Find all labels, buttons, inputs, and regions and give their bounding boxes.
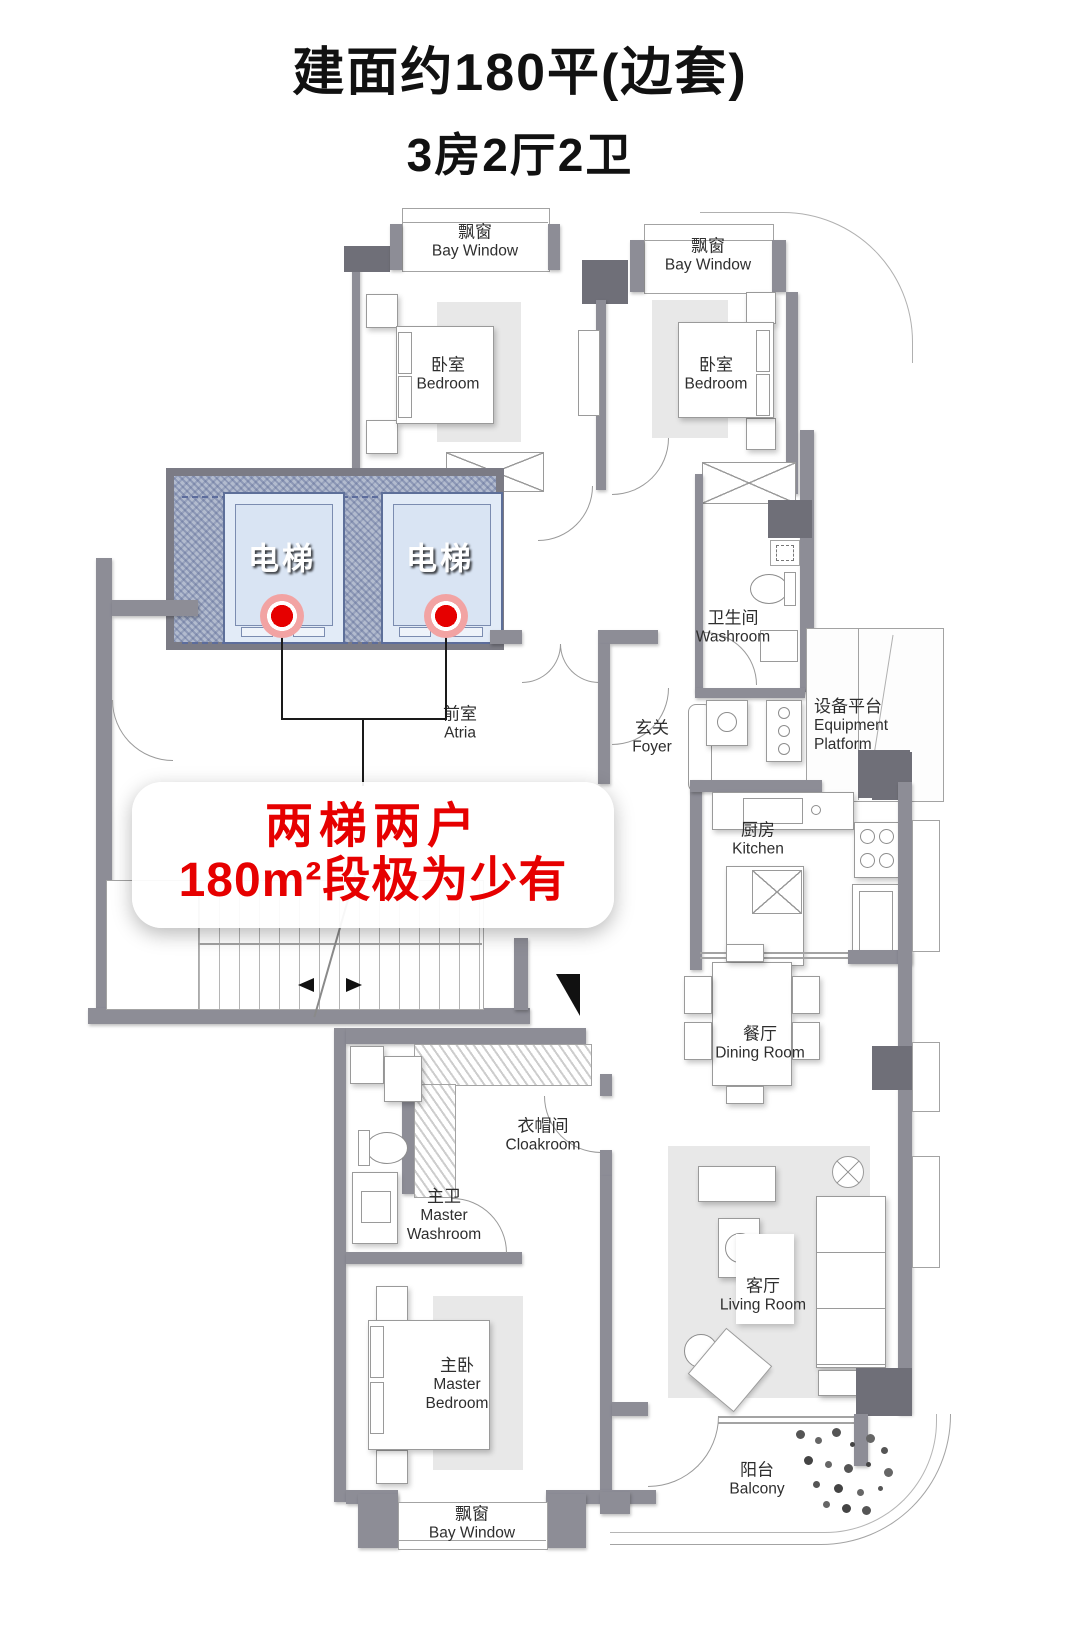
label-en: Master Washroom — [396, 1208, 492, 1245]
stair-arrow — [346, 978, 362, 992]
label-en: Equipment Platform — [814, 718, 910, 755]
exterior-window — [912, 820, 940, 952]
vent-shaft-inner — [776, 545, 794, 561]
wall — [112, 600, 198, 616]
wall — [695, 474, 703, 692]
room-label-cloakroom: 衣帽间 Cloakroom — [506, 1117, 581, 1156]
wall — [88, 1008, 530, 1024]
wall — [346, 1028, 586, 1044]
wall — [582, 260, 628, 304]
burner — [860, 829, 875, 844]
floorplan-page: 建面约180平(边套) 3房2厅2卫 — [0, 0, 1080, 1625]
section-marker — [556, 974, 580, 1016]
toilet — [366, 1132, 408, 1164]
entry-door-arc — [522, 644, 561, 683]
wall — [390, 224, 402, 270]
room-label-equipment-platform: 设备平台 Equipment Platform — [814, 697, 910, 755]
callout-line — [281, 718, 447, 720]
side-table — [832, 1156, 864, 1188]
label-en: Dining Room — [715, 1045, 805, 1064]
label-zh: 卫生间 — [696, 609, 770, 629]
nightstand — [376, 1286, 408, 1322]
label-en: Living Room — [720, 1297, 806, 1316]
wall — [600, 1074, 612, 1096]
callout-line — [281, 636, 283, 720]
exterior-window — [912, 1042, 940, 1112]
label-zh: 厨房 — [732, 821, 784, 841]
label-en: Foyer — [632, 739, 672, 758]
nightstand — [366, 294, 398, 328]
wall — [856, 1368, 912, 1416]
label-zh: 玄关 — [632, 719, 672, 739]
cabinet-inner — [859, 891, 893, 951]
wall — [695, 688, 805, 698]
pillow — [756, 330, 770, 372]
label-en: Balcony — [729, 1481, 784, 1500]
sink — [361, 1191, 391, 1223]
label-en: Master Bedroom — [409, 1377, 505, 1414]
burner — [879, 853, 894, 868]
wall — [598, 630, 658, 644]
sliding-door-line — [700, 957, 850, 959]
chair — [726, 1086, 764, 1104]
label-en: Washroom — [696, 629, 770, 648]
room-label-atria: 前室 Atria — [443, 705, 477, 744]
sink — [384, 1056, 422, 1102]
highlight-callout: 两梯两户 180m²段极为少有 — [132, 782, 614, 928]
exterior-window — [912, 1156, 940, 1268]
wall — [598, 644, 610, 784]
room-label-kitchen: 厨房 Kitchen — [732, 821, 784, 860]
toilet-tank — [784, 572, 796, 606]
label-zh: 主卧 — [409, 1356, 505, 1376]
door-arc — [112, 700, 173, 761]
vanity — [352, 1172, 398, 1244]
room-label-bay-window-bottom: 飘窗 Bay Window — [429, 1505, 515, 1544]
room-label-balcony: 阳台 Balcony — [729, 1461, 784, 1500]
label-zh: 衣帽间 — [506, 1117, 581, 1137]
cabinet — [852, 884, 900, 958]
nightstand — [376, 1450, 408, 1484]
chair — [726, 944, 764, 962]
label-zh: 前室 — [443, 705, 477, 725]
room-label-foyer: 玄关 Foyer — [632, 719, 672, 758]
nightstand — [746, 418, 776, 450]
line — [198, 943, 482, 945]
wall — [548, 224, 560, 270]
wall — [690, 780, 822, 792]
label-en: Bedroom — [417, 376, 480, 395]
knob — [778, 743, 790, 755]
plant — [796, 1430, 926, 1535]
room-label-bedroom-right: 卧室 Bedroom — [685, 356, 748, 395]
callout-line — [445, 636, 447, 720]
label-zh: 卧室 — [417, 356, 480, 376]
wall — [600, 1150, 612, 1176]
label-zh: 设备平台 — [814, 697, 910, 717]
fixture — [350, 1046, 384, 1084]
room-label-master-bedroom: 主卧 Master Bedroom — [409, 1356, 505, 1414]
label-zh: 主卫 — [396, 1187, 492, 1207]
burner — [879, 829, 894, 844]
cabinet — [578, 330, 600, 416]
knob — [778, 707, 790, 719]
wall — [600, 1492, 630, 1514]
label-en: Bay Window — [432, 243, 518, 262]
room-label-bay-window-right: 飘窗 Bay Window — [665, 237, 751, 276]
wall — [352, 268, 360, 484]
wall — [872, 1046, 912, 1090]
wall — [344, 246, 390, 272]
label-en: Cloakroom — [506, 1137, 581, 1156]
callout-line1: 两梯两户 — [265, 802, 481, 852]
chair — [792, 976, 820, 1014]
pillow — [370, 1382, 384, 1434]
floor-plan: 电梯 电梯 — [0, 0, 1080, 1625]
toilet-tank — [358, 1130, 370, 1166]
stove — [854, 822, 900, 878]
label-zh: 飘窗 — [665, 237, 751, 257]
dashed-line — [182, 642, 488, 644]
room-label-bay-window-left: 飘窗 Bay Window — [432, 223, 518, 262]
room-label-bedroom-left: 卧室 Bedroom — [417, 356, 480, 395]
callout-line2: 180m²段极为少有 — [179, 853, 568, 908]
tv-console — [698, 1166, 776, 1202]
label-zh: 飘窗 — [432, 223, 518, 243]
label-zh: 飘窗 — [429, 1505, 515, 1525]
door-arc — [538, 486, 593, 541]
appliance — [752, 870, 802, 914]
pillow — [398, 332, 412, 374]
label-zh: 卧室 — [685, 356, 748, 376]
elevator-marker-dot — [260, 594, 304, 638]
entry-door-arc — [560, 644, 599, 683]
room-label-living-room: 客厅 Living Room — [720, 1277, 806, 1316]
label-en: Kitchen — [732, 841, 784, 860]
nightstand — [746, 292, 776, 324]
toilet — [750, 574, 788, 604]
label-en: Bedroom — [685, 376, 748, 395]
door-arc — [612, 438, 669, 495]
label-zh: 阳台 — [729, 1461, 784, 1481]
callout-line — [362, 718, 364, 786]
wall — [334, 1028, 346, 1502]
sofa — [816, 1196, 886, 1368]
wall — [546, 1494, 586, 1548]
label-en: Bay Window — [429, 1525, 515, 1544]
pillow — [756, 374, 770, 416]
pillow — [398, 376, 412, 418]
wall — [490, 630, 522, 644]
room-label-washroom: 卫生间 Washroom — [696, 609, 770, 648]
chair — [684, 976, 712, 1014]
wall — [690, 780, 702, 970]
stair-arrow — [298, 978, 314, 992]
wall — [898, 782, 912, 1414]
washing-machine — [706, 700, 748, 746]
wall — [768, 500, 812, 538]
elevator-door — [399, 627, 431, 637]
cabinet — [766, 700, 802, 762]
burner — [860, 853, 875, 868]
label-en: Atria — [443, 725, 477, 744]
wardrobe-hatch — [414, 1044, 592, 1086]
label-en: Bay Window — [665, 257, 751, 276]
room-label-dining-room: 餐厅 Dining Room — [715, 1025, 805, 1064]
room-label-master-washroom: 主卫 Master Washroom — [396, 1187, 492, 1245]
faucet — [811, 805, 821, 815]
elevator-label: 电梯 — [248, 534, 316, 579]
sliding-door-line — [700, 952, 850, 954]
washer-drum — [717, 712, 737, 732]
knob — [778, 725, 790, 737]
label-zh: 客厅 — [720, 1277, 806, 1297]
elevator-label: 电梯 — [406, 534, 474, 579]
nightstand — [366, 420, 398, 454]
chair — [684, 1022, 712, 1060]
wall — [346, 1252, 522, 1264]
pillow — [370, 1326, 384, 1378]
wall — [514, 938, 528, 1010]
label-zh: 餐厅 — [715, 1025, 805, 1045]
wardrobe — [702, 462, 796, 504]
wall — [630, 240, 644, 292]
elevator-marker-dot — [424, 594, 468, 638]
wall — [358, 1494, 398, 1548]
